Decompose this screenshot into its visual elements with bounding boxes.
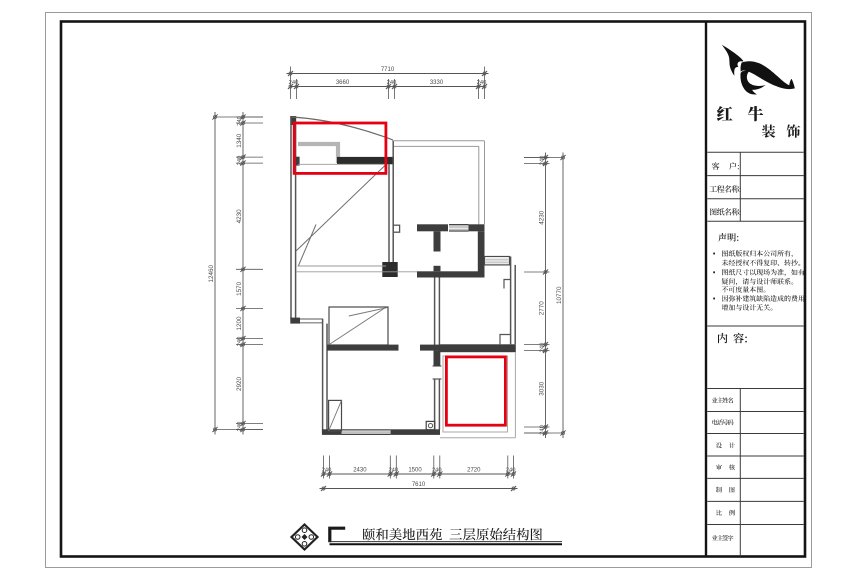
- svg-text:1500: 1500: [408, 468, 422, 474]
- svg-text:240: 240: [237, 156, 243, 166]
- svg-text:2770: 2770: [539, 301, 546, 316]
- svg-text:240: 240: [388, 468, 398, 474]
- svg-text:2920: 2920: [236, 377, 243, 392]
- svg-text:240: 240: [289, 80, 299, 86]
- svg-text:240: 240: [387, 80, 397, 86]
- svg-text:12460: 12460: [208, 264, 215, 282]
- svg-text:240: 240: [506, 468, 516, 474]
- svg-text:1570: 1570: [236, 281, 243, 296]
- svg-text:240: 240: [237, 337, 243, 347]
- svg-text:1340: 1340: [236, 133, 243, 148]
- svg-text:240: 240: [477, 80, 487, 86]
- svg-text:240: 240: [237, 422, 243, 432]
- svg-text:1200: 1200: [236, 316, 243, 331]
- svg-text:10770: 10770: [556, 286, 563, 304]
- svg-text:240: 240: [540, 343, 546, 353]
- svg-text:2430: 2430: [353, 468, 367, 474]
- svg-text:7610: 7610: [412, 482, 426, 488]
- svg-text:2720: 2720: [467, 468, 481, 474]
- svg-text:4230: 4230: [539, 210, 546, 225]
- svg-text:240: 240: [322, 468, 332, 474]
- svg-text:240: 240: [432, 468, 442, 474]
- svg-text:7710: 7710: [381, 67, 395, 73]
- svg-text:3660: 3660: [336, 80, 350, 86]
- svg-text:4230: 4230: [236, 209, 243, 224]
- svg-text:3030: 3030: [539, 381, 546, 396]
- svg-text:240: 240: [237, 116, 243, 126]
- svg-text:3330: 3330: [430, 80, 444, 86]
